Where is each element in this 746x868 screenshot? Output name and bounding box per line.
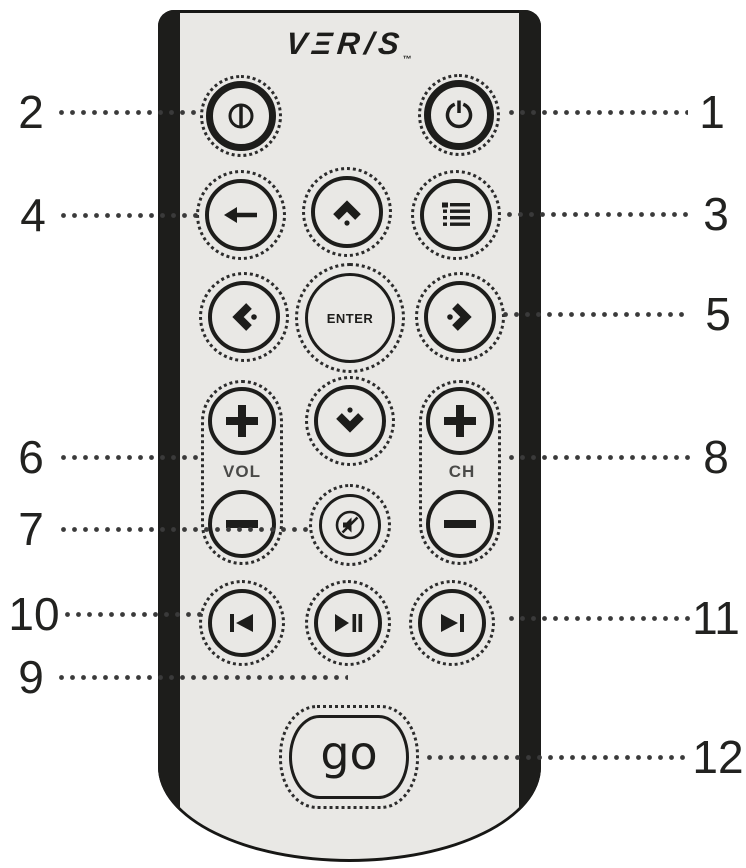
chevron-right-icon bbox=[444, 299, 476, 335]
back-arrow-icon bbox=[222, 203, 260, 227]
callout-10-label: 10 bbox=[8, 591, 59, 637]
channel-down-button[interactable] bbox=[426, 490, 494, 558]
callout-9-label: 9 bbox=[18, 654, 44, 700]
plus-icon bbox=[441, 402, 479, 440]
callout-3-label: 3 bbox=[703, 191, 729, 237]
power-button[interactable] bbox=[424, 80, 494, 150]
back-button[interactable] bbox=[205, 179, 277, 251]
play-pause-button[interactable] bbox=[314, 589, 382, 657]
io-power-icon bbox=[224, 99, 258, 133]
volume-down-button[interactable] bbox=[208, 490, 276, 558]
io-power-button[interactable] bbox=[206, 81, 276, 151]
callout-5-label: 5 bbox=[705, 291, 731, 337]
up-arrow-button[interactable] bbox=[311, 176, 383, 248]
power-icon bbox=[441, 97, 477, 133]
left-arrow-button[interactable] bbox=[208, 281, 280, 353]
previous-icon bbox=[224, 611, 260, 635]
menu-list-icon bbox=[438, 199, 474, 231]
chevron-up-icon bbox=[329, 196, 365, 228]
minus-icon bbox=[223, 505, 261, 543]
brand-logo: VΞR/S™ bbox=[156, 26, 543, 64]
callout-6-label: 6 bbox=[18, 434, 44, 480]
menu-button[interactable] bbox=[420, 179, 492, 251]
trademark-symbol: ™ bbox=[402, 54, 412, 64]
channel-up-button[interactable] bbox=[426, 387, 494, 455]
callout-4-label: 4 bbox=[20, 192, 46, 238]
right-arrow-button[interactable] bbox=[424, 281, 496, 353]
go-button[interactable]: go bbox=[289, 715, 409, 799]
down-arrow-button[interactable] bbox=[314, 385, 386, 457]
callout-1-label: 1 bbox=[699, 89, 725, 135]
next-icon bbox=[434, 611, 470, 635]
callout-8-label: 8 bbox=[703, 434, 729, 480]
go-button-label: go bbox=[320, 730, 377, 784]
mute-icon bbox=[333, 508, 367, 542]
callout-2-label: 2 bbox=[18, 89, 44, 135]
callout-11-label: 11 bbox=[692, 595, 740, 641]
next-button[interactable] bbox=[418, 589, 486, 657]
channel-group-label: CH bbox=[449, 462, 476, 482]
mute-button[interactable] bbox=[319, 494, 381, 556]
enter-button[interactable]: ENTER bbox=[305, 273, 395, 363]
enter-button-label: ENTER bbox=[327, 311, 374, 326]
play-pause-icon bbox=[330, 611, 366, 635]
chevron-down-icon bbox=[332, 405, 368, 437]
minus-icon bbox=[441, 505, 479, 543]
volume-up-button[interactable] bbox=[208, 387, 276, 455]
volume-group-label: VOL bbox=[223, 462, 261, 482]
remote-diagram: VΞR/S™ bbox=[0, 0, 746, 868]
brand-logo-text: VΞR/S bbox=[284, 26, 405, 61]
callout-12-label: 12 bbox=[692, 734, 743, 780]
chevron-left-icon bbox=[228, 299, 260, 335]
callout-7-label: 7 bbox=[18, 506, 44, 552]
previous-button[interactable] bbox=[208, 589, 276, 657]
plus-icon bbox=[223, 402, 261, 440]
